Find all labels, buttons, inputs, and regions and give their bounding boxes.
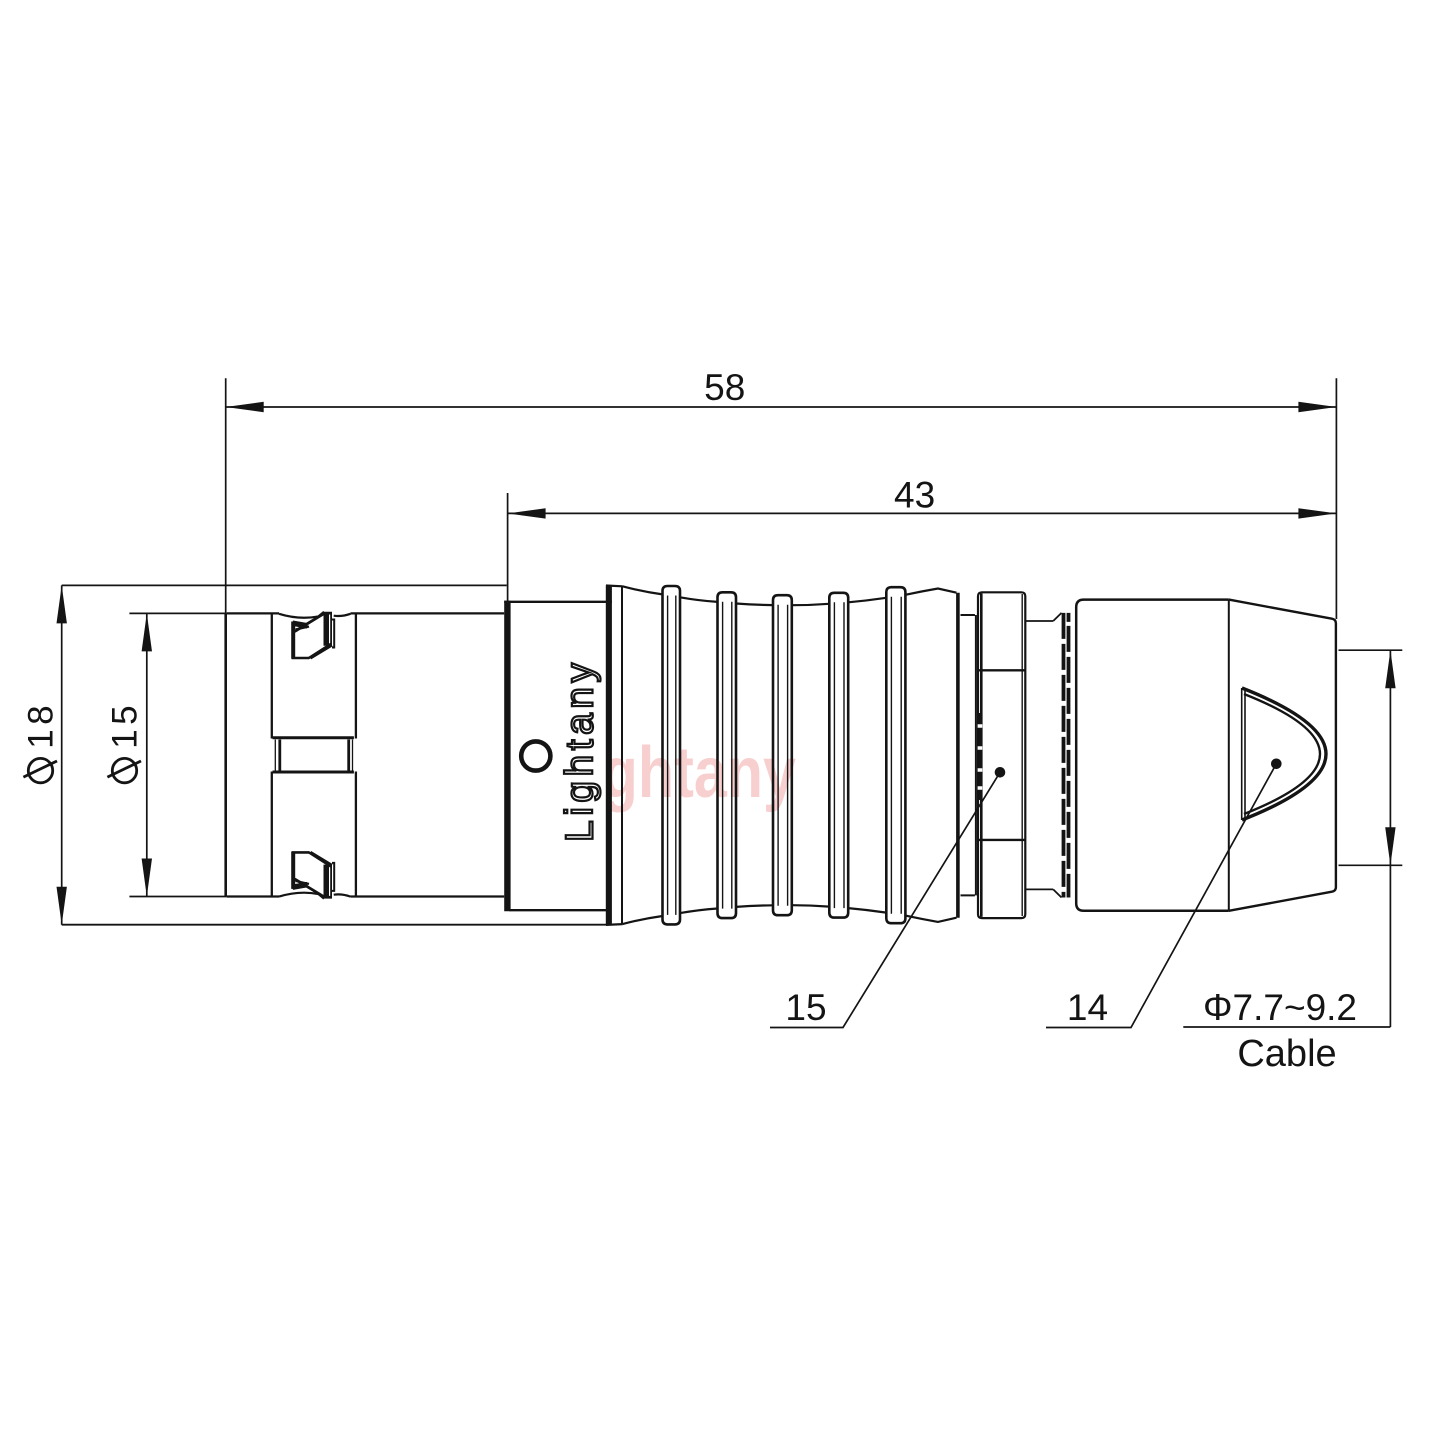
svg-text:58: 58	[704, 367, 745, 408]
svg-text:18: 18	[22, 701, 61, 749]
svg-text:Cable: Cable	[1237, 1033, 1336, 1075]
svg-text:15: 15	[106, 701, 145, 749]
svg-text:Lightany: Lightany	[559, 659, 602, 842]
svg-text:43: 43	[894, 475, 935, 516]
svg-text:Φ7.7~9.2: Φ7.7~9.2	[1203, 987, 1357, 1028]
svg-text:14: 14	[1067, 987, 1108, 1028]
svg-text:15: 15	[785, 987, 826, 1028]
